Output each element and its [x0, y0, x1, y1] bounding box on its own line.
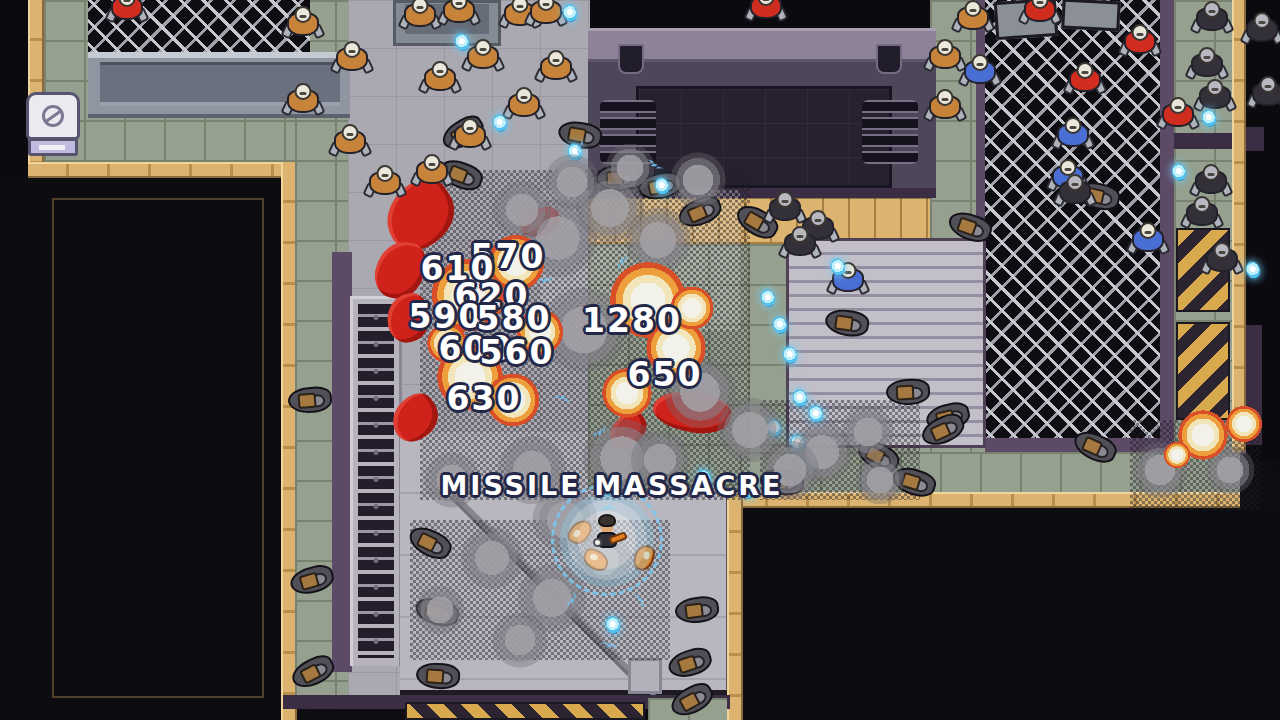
corpse: [287, 385, 333, 415]
soldier-helmet: [344, 41, 361, 58]
corpse: [666, 678, 717, 720]
enemy-soldier-tan: [414, 154, 450, 186]
enemy-soldier-dark: [1244, 12, 1280, 44]
enemy-soldier-tan: [927, 89, 963, 121]
soldier-helmet: [777, 191, 794, 208]
corpse: [674, 594, 721, 625]
corpse: [823, 307, 870, 339]
soldier-helmet: [1260, 76, 1277, 93]
enemy-soldier-tan: [506, 87, 542, 119]
explosion: [1222, 402, 1266, 446]
enemy-soldier-dark: [767, 191, 803, 223]
soldier-helmet: [1170, 97, 1187, 114]
soldier-helmet: [1140, 222, 1157, 239]
corpse: [885, 378, 930, 406]
xp-gem: [781, 344, 800, 365]
soldier-helmet: [1194, 196, 1211, 213]
enemy-soldier-dark: [1057, 174, 1093, 206]
xp-gem: [791, 387, 810, 408]
enemy-soldier-tan: [285, 83, 321, 115]
corpse: [945, 208, 995, 247]
damage-number: 560: [480, 333, 555, 372]
soldier-helmet: [516, 87, 533, 104]
enemy-soldier-tan: [452, 118, 488, 150]
enemy-soldier-dark: [1197, 79, 1233, 111]
soldier-helmet: [424, 154, 441, 171]
soldier-helmet: [432, 61, 449, 78]
corpse: [405, 522, 456, 565]
soldier-helmet: [1204, 1, 1221, 18]
enemy-soldier-dark: [1250, 76, 1280, 108]
enemy-soldier-red: [748, 0, 784, 21]
soldier-helmet: [1065, 117, 1082, 134]
corpse: [287, 650, 338, 693]
soldier-helmet: [1254, 12, 1271, 29]
enemy-soldier-red: [1160, 97, 1196, 129]
soldier-helmet: [972, 54, 989, 71]
smoke-puff: [410, 580, 470, 640]
corpse: [415, 661, 461, 690]
enemy-soldier-blue: [1130, 222, 1166, 254]
enemy-soldier-dark: [1193, 164, 1229, 196]
enemy-soldier-blue: [1055, 117, 1091, 149]
xp-gem: [1244, 259, 1263, 280]
enemy-soldier-tan: [285, 6, 321, 38]
enemy-soldier-red: [109, 0, 145, 22]
enemy-soldier-tan: [367, 165, 403, 197]
smoke-puff: [600, 138, 660, 198]
xp-gem: [771, 314, 790, 335]
enemy-soldier-blue: [962, 54, 998, 86]
soldier-helmet: [1214, 242, 1231, 259]
soldier-helmet: [462, 118, 479, 135]
soldier-helmet: [342, 124, 359, 141]
enemy-soldier-tan: [955, 0, 991, 32]
soldier-helmet: [1077, 62, 1094, 79]
enemy-soldier-tan: [402, 0, 438, 29]
enemy-soldier-red: [1067, 62, 1103, 94]
soldier-helmet: [937, 89, 954, 106]
soldier-helmet: [965, 0, 982, 17]
damage-number: 650: [628, 355, 703, 394]
soldier-helmet: [1067, 174, 1084, 191]
electric-spark: [551, 389, 572, 407]
skill-banner: MISSILE MASSACRE: [440, 470, 783, 501]
enemy-soldier-red: [1022, 0, 1058, 24]
corpse: [1070, 426, 1121, 468]
soldier-helmet: [810, 210, 827, 227]
player-pack: [593, 538, 602, 547]
smoke-puff: [664, 146, 732, 214]
soldier-helmet: [1207, 79, 1224, 96]
sprite-layer: 5706106205905806005601280650630: [0, 0, 1280, 720]
soldier-helmet: [548, 50, 565, 67]
enemy-soldier-red: [1122, 24, 1158, 56]
smoke-puff: [486, 606, 554, 674]
xp-gem: [759, 287, 778, 308]
enemy-soldier-dark: [782, 226, 818, 258]
enemy-soldier-tan: [927, 39, 963, 71]
soldier-helmet: [1199, 47, 1216, 64]
enemy-soldier-dark: [1189, 47, 1225, 79]
corpse: [287, 561, 336, 598]
damage-number: 1280: [582, 301, 682, 340]
enemy-soldier-dark: [1184, 196, 1220, 228]
game-viewport[interactable]: 5706106205905806005601280650630 MISSILE …: [0, 0, 1280, 720]
enemy-soldier-tan: [422, 61, 458, 93]
electric-spark: [600, 637, 621, 654]
soldier-helmet: [377, 165, 394, 182]
corpse: [665, 644, 715, 682]
enemy-soldier-tan: [334, 41, 370, 73]
soldier-helmet: [295, 6, 312, 23]
enemy-soldier-tan: [441, 0, 477, 25]
enemy-soldier-tan: [538, 50, 574, 82]
soldier-helmet: [475, 39, 492, 56]
enemy-soldier-dark: [1204, 242, 1240, 274]
xp-gem: [1170, 161, 1189, 182]
soldier-helmet: [1203, 164, 1220, 181]
soldier-helmet: [792, 226, 809, 243]
enemy-soldier-dark: [1194, 1, 1230, 33]
enemy-soldier-tan: [465, 39, 501, 71]
electric-spark: [631, 589, 650, 610]
explosion: [1161, 439, 1193, 471]
enemy-soldier-tan: [528, 0, 564, 26]
player-head: [598, 514, 616, 527]
damage-number: 630: [447, 379, 522, 418]
soldier-helmet: [1132, 24, 1149, 41]
soldier-helmet: [937, 39, 954, 56]
enemy-soldier-tan: [332, 124, 368, 156]
xp-gem: [604, 614, 623, 635]
soldier-helmet: [295, 83, 312, 100]
smoke-puff: [850, 450, 910, 510]
